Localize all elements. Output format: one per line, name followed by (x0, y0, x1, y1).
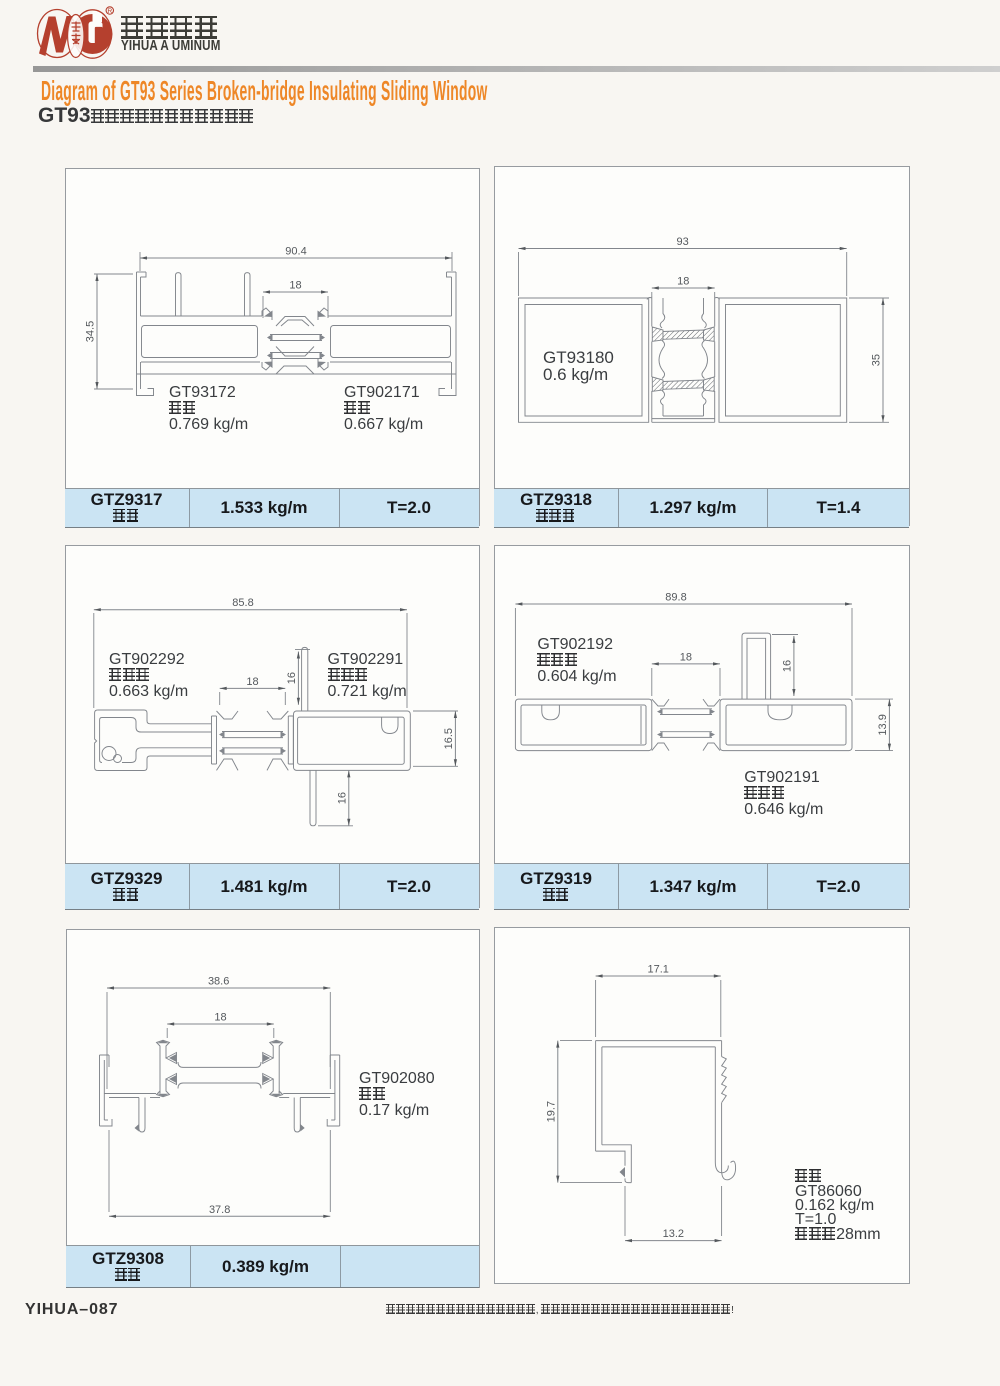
svg-text:16: 16 (286, 672, 298, 684)
svg-text:13.9: 13.9 (877, 714, 889, 735)
svg-text:85.8: 85.8 (232, 597, 253, 609)
svg-text:18: 18 (246, 676, 258, 688)
svg-text:18: 18 (677, 276, 689, 288)
svg-text:16: 16 (781, 660, 793, 672)
svg-text:38.6: 38.6 (208, 976, 229, 988)
svg-text:18: 18 (680, 651, 692, 663)
svg-text:13.2: 13.2 (663, 1228, 684, 1240)
svg-text:90.4: 90.4 (285, 246, 306, 258)
svg-text:18: 18 (289, 280, 301, 292)
svg-text:89.8: 89.8 (665, 592, 686, 604)
svg-text:35: 35 (871, 354, 883, 366)
svg-text:93: 93 (676, 236, 688, 248)
svg-text:19.7: 19.7 (545, 1101, 557, 1122)
svg-text:16.5: 16.5 (443, 728, 455, 749)
svg-text:16: 16 (336, 792, 348, 804)
svg-text:34.5: 34.5 (85, 321, 97, 342)
svg-text:17.1: 17.1 (647, 964, 668, 976)
svg-text:37.8: 37.8 (209, 1204, 230, 1216)
svg-text:18: 18 (214, 1012, 226, 1024)
